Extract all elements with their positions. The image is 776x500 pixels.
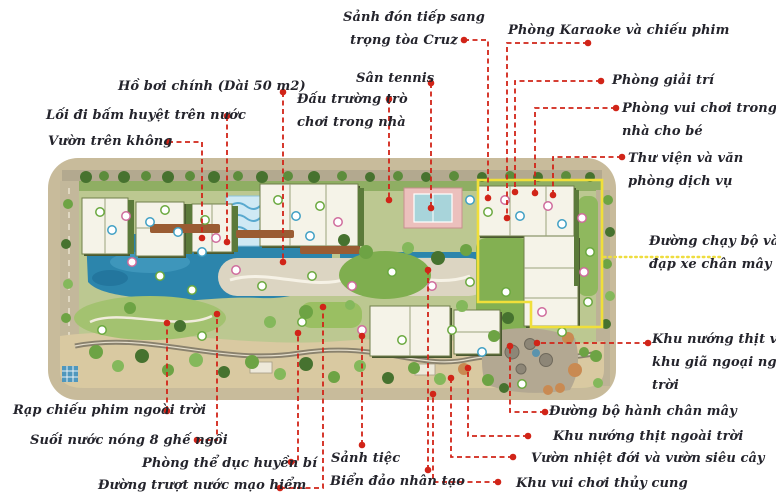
map-label-banquet-hall: Sảnh tiệc: [331, 449, 395, 468]
map-label-tennis-court: Sân tennis: [356, 69, 428, 88]
map-label-aquarium-playground: Khu vui chơi thủy cung: [516, 474, 662, 493]
map-label-line: Phòng Karaoke và chiếu phim: [508, 21, 690, 40]
map-label-line: Suối nước nóng 8 ghế ngồi: [30, 431, 192, 450]
map-label-kids-playroom: Phòng vui chơi trongnhà cho bé: [622, 99, 774, 141]
map-label-line: Sảnh tiệc: [331, 449, 395, 468]
map-label-game-arena: Đấu trường tròchơi trong nhà: [297, 90, 389, 132]
map-label-line: Biển đảo nhân tạo: [330, 472, 444, 491]
map-label-entertainment-room: Phòng giải trí: [612, 71, 708, 90]
map-label-outdoor-cinema: Rạp chiếu phim ngoài trời: [13, 401, 173, 420]
map-label-line: nhà cho bé: [622, 122, 774, 141]
map-label-line: Khu nướng thịt ngoài trời: [553, 427, 715, 446]
map-label-sky-garden: Vườn trên không: [48, 132, 154, 151]
map-label-line: Phòng giải trí: [612, 71, 708, 90]
map-label-line: Khu vui chơi thủy cung: [516, 474, 662, 493]
map-label-line: Vườn trên không: [48, 132, 154, 151]
map-label-line: Đường bộ hành chân mây: [549, 402, 701, 421]
map-label-line: phòng dịch vụ: [628, 172, 774, 191]
map-label-line: Hồ bơi chính (Dài 50 m2): [118, 77, 276, 96]
map-label-line: chơi trong nhà: [297, 113, 389, 132]
map-label-line: Đường trượt nước mạo hiểm: [98, 476, 266, 495]
map-label-line: khu giã ngoại ngoài: [652, 353, 776, 372]
map-label-karaoke-room: Phòng Karaoke và chiếu phim: [508, 21, 690, 40]
map-label-line: Đấu trường trò: [297, 90, 389, 109]
map-label-library-office: Thư viện và vănphòng dịch vụ: [628, 149, 774, 191]
map-label-acupressure-walk: Lối đi bấm huyệt trên nước: [46, 106, 220, 125]
map-label-line: Phòng thể dục huyền bí: [142, 454, 292, 473]
map-label-line: Rạp chiếu phim ngoài trời: [13, 401, 173, 420]
map-label-cloud-walkway: Đường bộ hành chân mây: [549, 402, 701, 421]
map-label-tropical-garden: Vườn nhiệt đới và vườn siêu cây: [531, 449, 717, 468]
map-label-gym-room: Phòng thể dục huyền bí: [142, 454, 292, 473]
map-label-line: Khu nướng thịt và: [652, 330, 776, 349]
map-label-bbq-picnic-area: Khu nướng thịt vàkhu giã ngoại ngoàitrời: [652, 330, 776, 395]
map-label-jogging-cycling-path: Đường chạy bộ vàđạp xe chân mây: [649, 232, 775, 274]
map-label-line: đạp xe chân mây: [649, 255, 775, 274]
map-label-line: Phòng vui chơi trong: [622, 99, 774, 118]
map-label-line: Sảnh đón tiếp sang: [343, 8, 465, 27]
label-layer: Sảnh đón tiếp sangtrọng tòa CruzPhòng Ka…: [0, 0, 776, 500]
map-label-hot-spring: Suối nước nóng 8 ghế ngồi: [30, 431, 192, 450]
map-label-artificial-island: Biển đảo nhân tạo: [330, 472, 444, 491]
map-label-outdoor-bbq: Khu nướng thịt ngoài trời: [553, 427, 715, 446]
masterplan-page: Sảnh đón tiếp sangtrọng tòa CruzPhòng Ka…: [0, 0, 776, 500]
map-label-line: trọng tòa Cruz: [343, 31, 465, 50]
map-label-line: Sân tennis: [356, 69, 428, 88]
map-label-main-pool: Hồ bơi chính (Dài 50 m2): [118, 77, 276, 96]
map-label-line: Thư viện và văn: [628, 149, 774, 168]
map-label-line: Vườn nhiệt đới và vườn siêu cây: [531, 449, 717, 468]
map-label-line: Lối đi bấm huyệt trên nước: [46, 106, 220, 125]
map-label-line: Đường chạy bộ và: [649, 232, 775, 251]
map-label-line: trời: [652, 376, 776, 395]
map-label-water-slide: Đường trượt nước mạo hiểm: [98, 476, 266, 495]
map-label-cruz-lobby: Sảnh đón tiếp sangtrọng tòa Cruz: [343, 8, 465, 50]
